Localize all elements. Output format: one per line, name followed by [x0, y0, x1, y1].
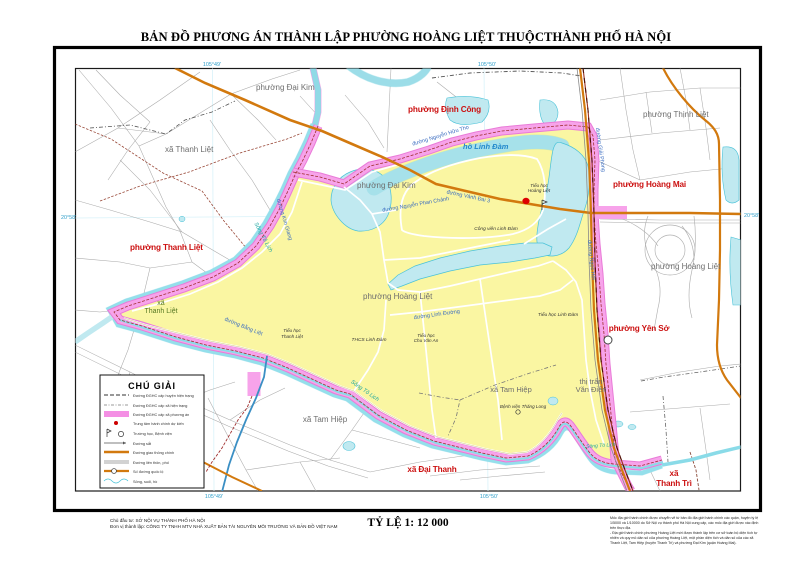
svg-text:Đường ĐGHC cấp xã hiện trạng: Đường ĐGHC cấp xã hiện trạng [133, 404, 187, 408]
svg-text:phường Đại Kim: phường Đại Kim [256, 83, 315, 92]
svg-text:Văn Điển: Văn Điển [576, 385, 607, 394]
svg-text:Tiểu học: Tiểu học [530, 182, 548, 188]
svg-text:xã Thanh Liệt: xã Thanh Liệt [165, 145, 214, 154]
svg-text:phường Đại Kim: phường Đại Kim [357, 181, 416, 190]
svg-text:Đường ĐGHC cấp huyện hiện trạn: Đường ĐGHC cấp huyện hiện trạng [133, 394, 194, 398]
svg-text:CHÚ GIẢI: CHÚ GIẢI [128, 380, 176, 391]
svg-text:phường Định Công: phường Định Công [408, 105, 481, 114]
svg-text:Thanh Liệt: Thanh Liệt [144, 308, 177, 315]
svg-text:xã: xã [157, 300, 165, 307]
svg-text:phường Thịnh Liệt: phường Thịnh Liệt [643, 110, 709, 119]
svg-text:105°49': 105°49' [205, 494, 223, 500]
svg-text:BẢN ĐỒ PHƯƠNG ÁN THÀNH LẬP PHƯ: BẢN ĐỒ PHƯƠNG ÁN THÀNH LẬP PHƯỜNG HOÀNG … [141, 29, 671, 44]
svg-text:Đường giao thông chính: Đường giao thông chính [133, 451, 174, 455]
svg-text:Đường liên thôn, phố: Đường liên thôn, phố [133, 461, 170, 465]
svg-text:Bệnh viện Thăng Long: Bệnh viện Thăng Long [500, 404, 547, 409]
svg-text:Trung tâm hành chính dự kiến: Trung tâm hành chính dự kiến [133, 422, 184, 426]
svg-text:phường Hoàng Liệt: phường Hoàng Liệt [363, 292, 433, 301]
svg-text:- Địa giới hành chính phường H: - Địa giới hành chính phường Hoàng Liệt … [610, 531, 758, 535]
svg-text:Công viên Linh Đàm: Công viên Linh Đàm [474, 226, 517, 232]
svg-text:1/5000 và 1/10000 do Sở Nội vụ: 1/5000 và 1/10000 do Sở Nội vụ thành phố… [610, 521, 758, 525]
svg-text:THCS Linh Đàm: THCS Linh Đàm [352, 337, 387, 343]
svg-text:105°50': 105°50' [480, 494, 498, 500]
svg-text:xã: xã [669, 469, 679, 478]
svg-text:Chu Văn An: Chu Văn An [414, 338, 439, 343]
svg-text:Chủ đầu tư: SỞ NỘI VỤ THÀNH PH: Chủ đầu tư: SỞ NỘI VỤ THÀNH PHỐ HÀ NỘI [110, 517, 205, 523]
svg-text:phường Hoàng Mai: phường Hoàng Mai [613, 180, 686, 189]
svg-text:Thanh Liệt, Tam Hiệp (huyện Th: Thanh Liệt, Tam Hiệp (huyện Thanh Trì) v… [610, 541, 736, 545]
svg-text:105°50': 105°50' [478, 62, 496, 68]
svg-text:phường Thanh Liệt: phường Thanh Liệt [130, 243, 203, 252]
svg-text:20°58': 20°58' [744, 213, 759, 219]
svg-text:hồ Linh Đàm: hồ Linh Đàm [463, 142, 509, 151]
svg-text:xã Tam Hiệp: xã Tam Hiệp [490, 385, 532, 394]
svg-text:Đường sắt: Đường sắt [133, 441, 152, 446]
svg-text:Tiểu học: Tiểu học [283, 327, 301, 333]
svg-text:phường Yên Sở: phường Yên Sở [609, 324, 670, 333]
svg-text:phường Hoàng Liệt: phường Hoàng Liệt [651, 262, 721, 271]
svg-text:xã Đại Thanh: xã Đại Thanh [407, 465, 456, 474]
svg-text:Số đường quốc lộ: Số đường quốc lộ [133, 470, 163, 474]
svg-text:Hoàng Liệt: Hoàng Liệt [528, 188, 551, 193]
svg-text:20°58': 20°58' [61, 215, 76, 221]
svg-text:Trường học, Bệnh viện: Trường học, Bệnh viện [133, 432, 172, 436]
svg-text:xã Tam Hiệp: xã Tam Hiệp [303, 415, 348, 424]
svg-text:Sông, suối, hồ: Sông, suối, hồ [133, 480, 157, 484]
svg-text:TỶ LỆ 1: 12 000: TỶ LỆ 1: 12 000 [367, 515, 448, 529]
svg-text:Tiểu học: Tiểu học [417, 332, 435, 338]
svg-text:Thanh Trì: Thanh Trì [656, 479, 692, 488]
svg-text:Đường ĐGHC cấp xã phương án: Đường ĐGHC cấp xã phương án [133, 413, 189, 417]
svg-text:105°49': 105°49' [203, 62, 221, 68]
svg-text:Mốc địa giới hành chính được c: Mốc địa giới hành chính được chuyển vẽ t… [610, 516, 758, 520]
svg-text:trên thực địa.: trên thực địa. [610, 526, 631, 530]
svg-text:Thanh Liệt: Thanh Liệt [281, 334, 303, 339]
svg-text:nhiên và quy mô dân số của phư: nhiên và quy mô dân số của phường Hoàng … [610, 536, 753, 540]
